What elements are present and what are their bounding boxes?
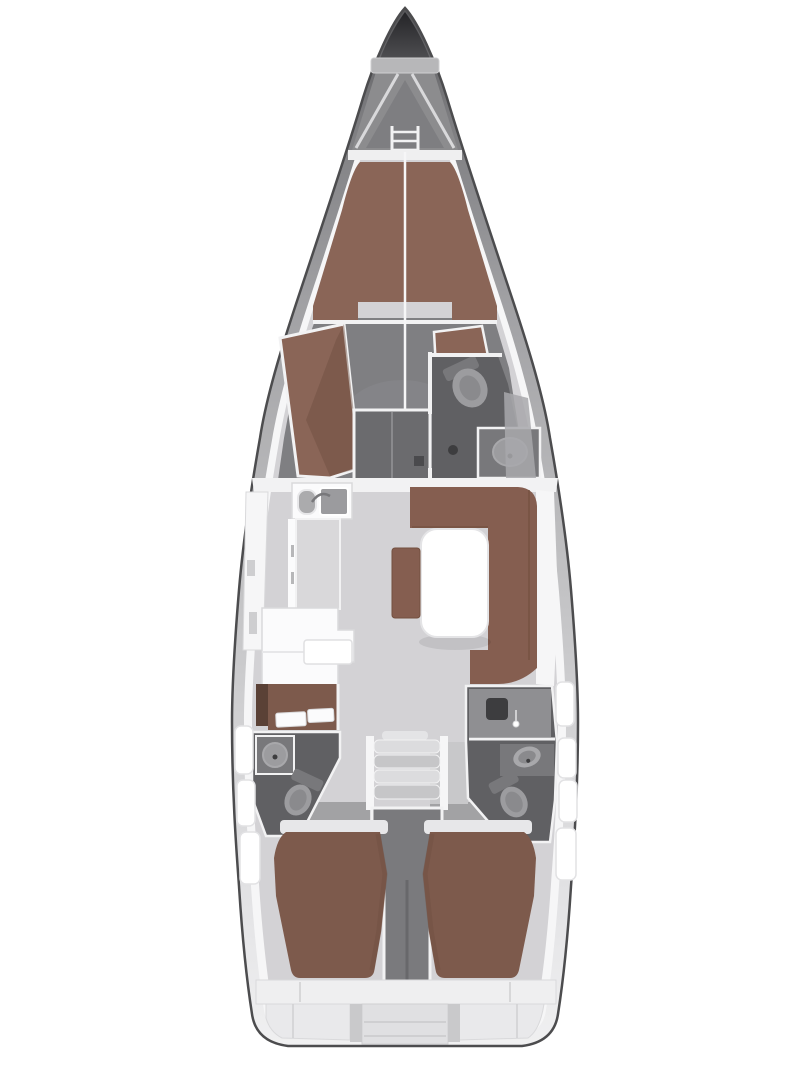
bow-section <box>348 12 462 160</box>
hull-window <box>235 726 253 774</box>
galley-handle <box>291 545 294 557</box>
stair-step-top <box>382 731 428 740</box>
salon-table <box>421 529 488 637</box>
galley-handle <box>291 572 294 584</box>
chart-table-leaf <box>276 712 307 728</box>
hull-window <box>556 682 574 726</box>
transom-divider <box>350 1004 362 1042</box>
stair-rail-left <box>366 736 374 810</box>
stair-step <box>374 755 440 768</box>
lining-spacer <box>247 560 255 576</box>
stair-step <box>374 740 440 753</box>
nav-trim <box>256 684 268 726</box>
stair-rail-right <box>440 736 448 810</box>
bow-shelf <box>371 58 439 73</box>
galley-worktop <box>296 519 340 609</box>
hull-window <box>240 832 260 884</box>
stair-step <box>374 770 440 783</box>
floor-drain <box>448 445 458 455</box>
transom-locker-starboard <box>458 1004 544 1040</box>
nav-station <box>256 684 338 730</box>
swim-step-recess <box>362 1004 448 1044</box>
transom-divider <box>448 1004 460 1042</box>
transom <box>256 980 556 1044</box>
hull-window <box>558 738 576 778</box>
salon-stool <box>392 548 420 618</box>
hull-window <box>556 828 576 880</box>
galley-sink-right <box>320 488 348 515</box>
starboard-aft-berth <box>423 832 536 978</box>
chart-table-leaf <box>307 708 334 722</box>
shower-drain <box>486 698 508 720</box>
salon-hull-lining-strip <box>536 490 558 686</box>
stair-step <box>374 785 440 799</box>
port-head-sink-drain <box>273 755 278 760</box>
galley-counter-edge <box>288 519 296 609</box>
yacht-floor-plan <box>0 0 810 1080</box>
port-berth-rim <box>280 820 388 834</box>
galley-raised-top <box>304 640 352 664</box>
stern-band <box>256 980 556 1004</box>
starboard-berth-rim <box>424 820 532 834</box>
wardrobe-knob <box>414 456 424 466</box>
transom-locker-port <box>266 1004 350 1040</box>
shower-head <box>513 721 519 727</box>
hull-window <box>559 780 577 822</box>
hull-window <box>237 780 255 826</box>
yacht-floor-plan-page <box>0 0 810 1080</box>
lining-spacer <box>249 612 257 634</box>
shower-floor <box>469 689 551 737</box>
port-aft-berth <box>274 832 387 978</box>
